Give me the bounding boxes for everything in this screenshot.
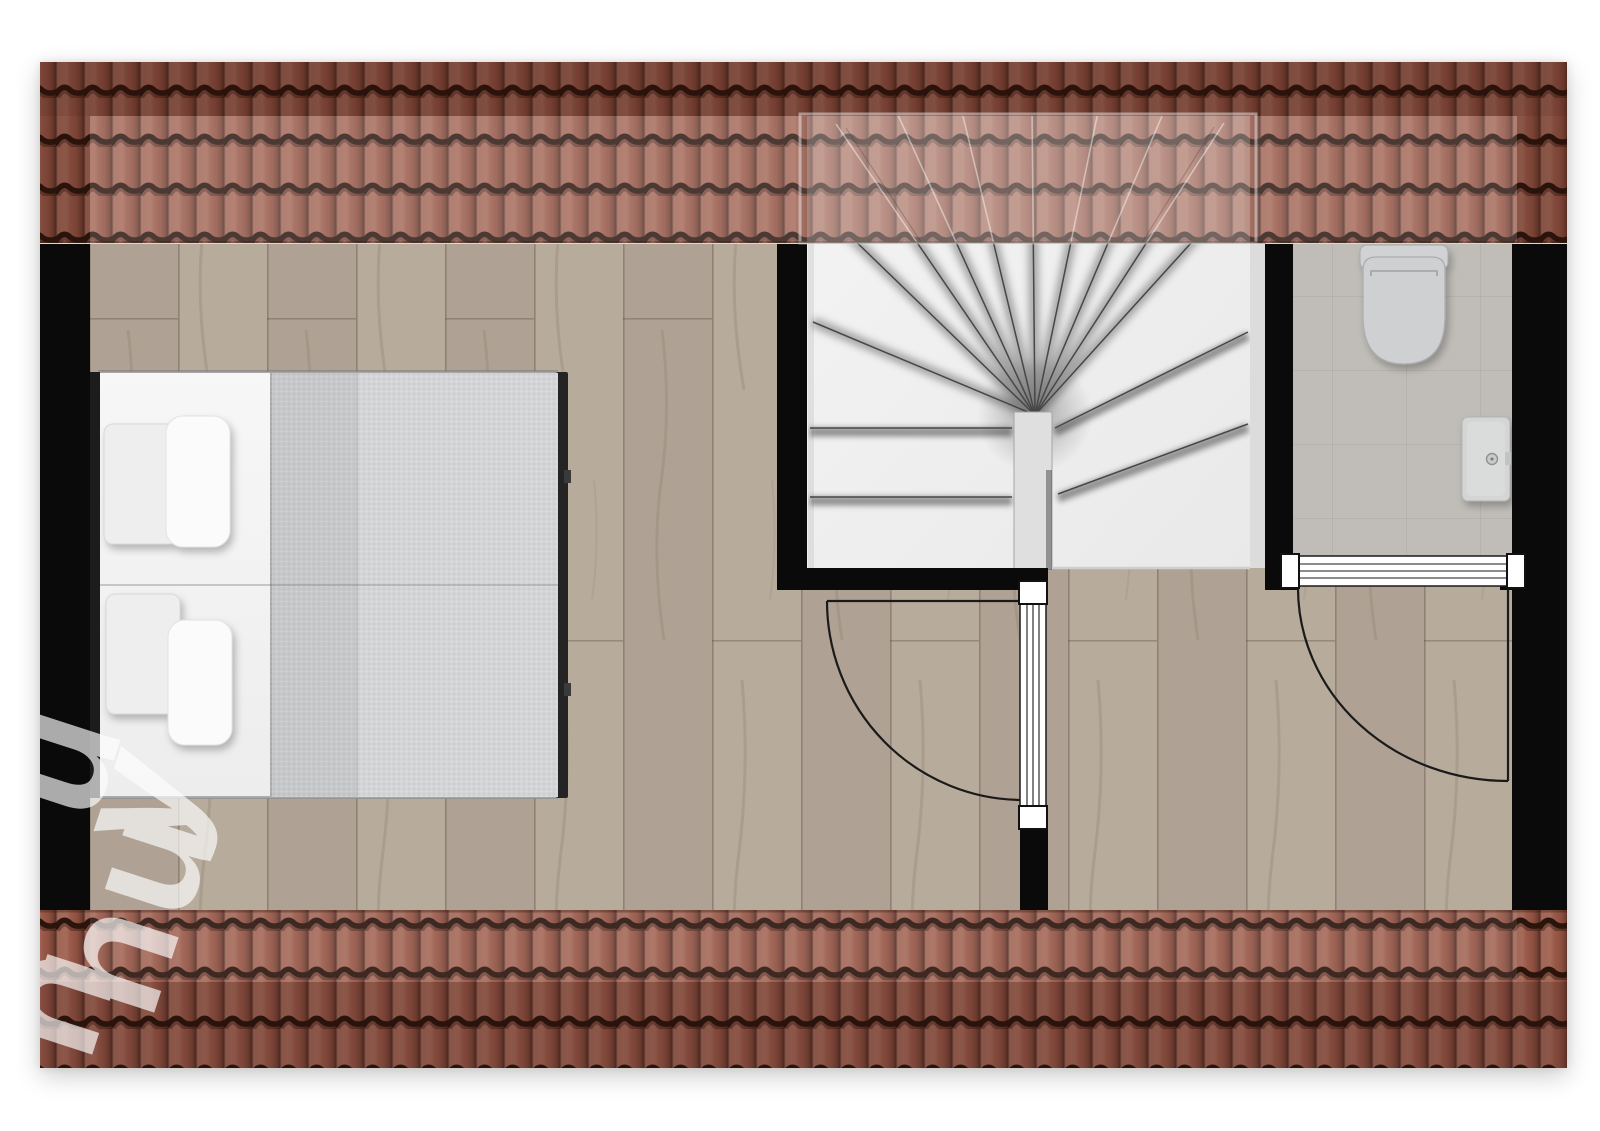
bed-blanket-seam [270, 584, 558, 586]
roof-band-bottom [40, 910, 1567, 1068]
toilet-bowl [1363, 257, 1445, 364]
door-jamb [1019, 581, 1047, 604]
sink-tap-mount [1505, 452, 1511, 465]
roof-eave-line [40, 910, 1567, 913]
roof-overlap-interior [90, 910, 1517, 982]
pillow [166, 416, 230, 547]
wall-stair-bottom [777, 568, 1048, 590]
roof-eave-line [40, 241, 1567, 244]
bed-frame-bracket [564, 683, 571, 696]
wall-door-stub [1020, 830, 1048, 910]
toilet [1360, 245, 1448, 364]
washbasin [1462, 417, 1511, 501]
roof-overlap-interior [90, 116, 1517, 243]
wall-stair-left [777, 244, 807, 590]
double-bed [88, 370, 571, 799]
door-jamb [1507, 554, 1525, 588]
bed-top-edge [98, 370, 558, 373]
bed-frame-bracket [564, 470, 571, 483]
newel-shadow-edge [1046, 470, 1052, 570]
roof-ridge-row [40, 62, 1567, 116]
pillow [168, 620, 232, 745]
floor-plan: u y u h n [40, 62, 1567, 1068]
roof-lower-rows [40, 982, 1567, 1068]
door-jamb [1019, 806, 1047, 829]
sink-drain-dot [1491, 458, 1494, 461]
wall-bathroom-left [1265, 244, 1293, 590]
door-jamb [1281, 554, 1299, 588]
